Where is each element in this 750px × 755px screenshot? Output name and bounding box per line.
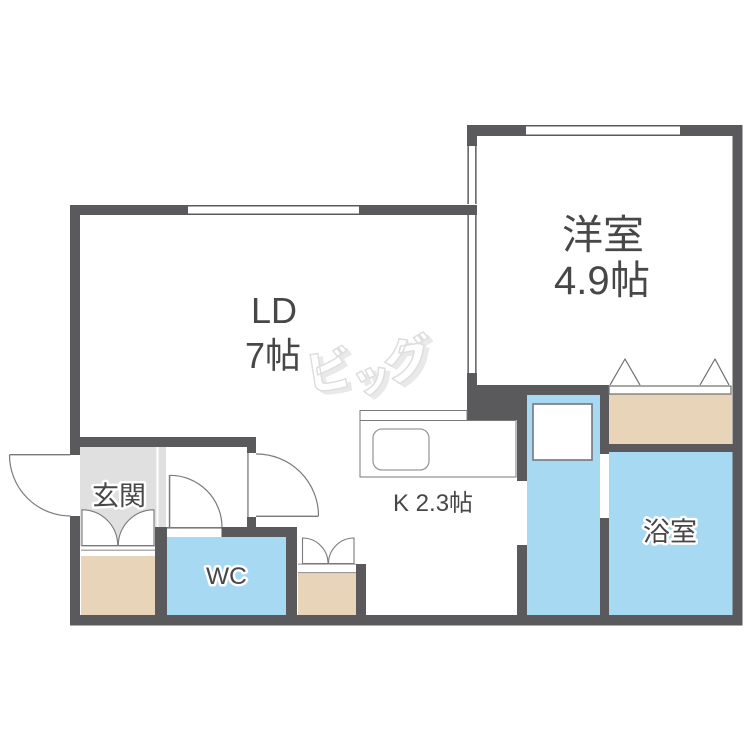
svg-text:K 2.3: K 2.3 (393, 490, 449, 517)
svg-text:WC: WC (206, 563, 247, 590)
svg-text:7: 7 (245, 335, 265, 376)
svg-text:4.9: 4.9 (554, 259, 610, 303)
svg-text:LD: LD (251, 290, 297, 331)
